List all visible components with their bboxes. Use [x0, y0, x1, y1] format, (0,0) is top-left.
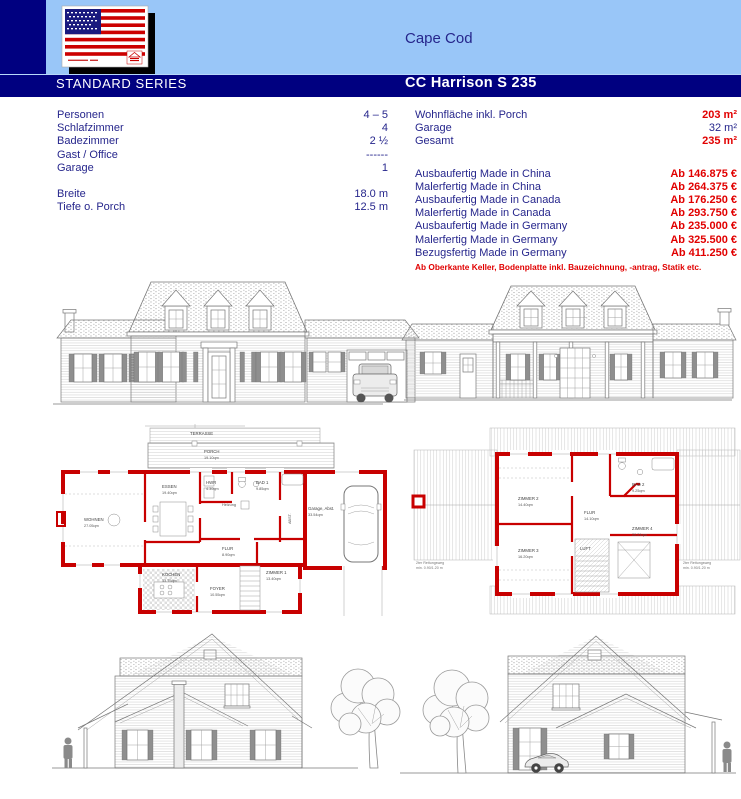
eg-room-label-kochen: KOCHEN [162, 572, 180, 577]
eg-room-label-essen: ESSEN [162, 484, 177, 489]
eg-room-area-foyer: 10.55qm [210, 593, 225, 597]
window [280, 352, 306, 382]
spec-label: Tiefe o. Porch [57, 201, 125, 214]
rear-elevation-drawing [398, 278, 738, 426]
porch: PORCH 19.10qm [148, 441, 334, 468]
eg-room-area-kochen: 13.75qm [162, 579, 177, 583]
model-name: CC Harrison S 235 [405, 75, 537, 91]
spec-label: Garage [415, 122, 452, 135]
price-row: Bezugsfertig Made in GermanyAb 411.250 € [415, 247, 737, 260]
price-value: Ab 411.250 € [671, 247, 737, 260]
price-label: Malerfertig Made in Canada [415, 207, 551, 220]
eg-room-label-abst: ABST. [288, 513, 292, 524]
price-row: Malerfertig Made in CanadaAb 293.750 € [415, 207, 737, 220]
window [256, 352, 282, 382]
area-row-gesamt: Gesamt235 m² [415, 135, 737, 148]
eg-room-label-wohnen: WOHNEN [84, 517, 104, 522]
price-row: Malerfertig Made in GermanyAb 325.500 € [415, 234, 737, 247]
left-wing [402, 324, 493, 398]
spec-row-schlafzimmer: Schlafzimmer4 [57, 122, 388, 135]
window [158, 352, 184, 382]
window [660, 352, 686, 378]
main-block [489, 286, 657, 398]
window [122, 730, 153, 760]
eg-room-area-porch: 19.10qm [204, 456, 219, 460]
price-footnote: Ab Oberkante Keller, Bodenplatte inkl. B… [415, 262, 737, 272]
front-elevation-drawing [45, 274, 390, 426]
upper-window [552, 684, 580, 710]
og-room-label-bad2: BAD 2 [632, 482, 645, 487]
eg-room-label-bad1: BAD 1 [256, 480, 269, 485]
rescue-note-right-2: min. 0.90/1.20 m [683, 566, 710, 570]
og-room-area-zimmer3: 16.20qm [518, 555, 533, 559]
spec-row-garage: Garage1 [57, 162, 388, 175]
price-label: Ausbaufertig Made in Germany [415, 220, 567, 233]
area-row-garage: Garage32 m² [415, 122, 737, 135]
spec-value: 235 m² [702, 135, 737, 148]
car-top-view [341, 486, 381, 562]
spec-row-personen: Personen4 – 5 [57, 109, 388, 122]
eg-room-area-wohnen: 27.05qm [84, 524, 99, 528]
eg-room-area-hwr: 4.30qm [206, 487, 219, 491]
price-value: Ab 293.750 € [670, 207, 737, 220]
tree [423, 670, 489, 773]
window [610, 354, 632, 380]
us-flag-logo [62, 6, 154, 74]
spec-value: 4 [382, 122, 388, 135]
area-row-wohnflaeche: Wohnfläche inkl. Porch203 m² [415, 109, 737, 122]
window [134, 352, 160, 382]
spec-value: 2 ½ [370, 135, 388, 148]
window [99, 354, 127, 382]
window [250, 730, 281, 760]
og-room-area-flur: 14.10qm [584, 517, 599, 521]
eg-room-label-zimmer1: ZIMMER 1 [266, 570, 287, 575]
price-value: Ab 264.375 € [670, 181, 737, 194]
price-value: Ab 146.875 € [670, 168, 737, 181]
specs-left-block: Personen4 – 5 Schlafzimmer4 Badezimmer2 … [57, 109, 388, 214]
og-room-area-zimmer2: 14.40qm [518, 503, 533, 507]
right-side-elevation-drawing [398, 628, 741, 778]
eg-room-label-flur: FLUR [222, 546, 233, 551]
specs-right-block: Wohnfläche inkl. Porch203 m² Garage32 m²… [415, 109, 737, 272]
spec-label: Wohnfläche inkl. Porch [415, 109, 527, 122]
eg-room-area-garage: 33.54qm [308, 513, 323, 517]
spec-row-badezimmer: Badezimmer2 ½ [57, 135, 388, 148]
main-block [127, 282, 309, 402]
eg-room-label-foyer: FOYER [210, 586, 225, 591]
spec-label: Gesamt [415, 135, 454, 148]
house-body [500, 636, 722, 773]
eg-room-label-terrasse: TERRASSE [190, 431, 213, 436]
price-label: Ausbaufertig Made in China [415, 168, 551, 181]
window [186, 730, 217, 760]
price-value: Ab 235.000 € [670, 220, 737, 233]
spec-label: Schlafzimmer [57, 122, 124, 135]
back-door [460, 354, 476, 398]
spec-value: 203 m² [702, 109, 737, 122]
spec-row-breite: Breite18.0 m [57, 188, 388, 201]
og-room-label-flur: FLUR [584, 510, 595, 515]
stairs [240, 566, 260, 610]
price-label: Ausbaufertig Made in Canada [415, 194, 561, 207]
price-row: Ausbaufertig Made in CanadaAb 176.250 € [415, 194, 737, 207]
eg-room-label-hwr: HWR [206, 480, 216, 485]
ground-floor-plan: TERRASSE PORCH 19.10qm [42, 424, 392, 624]
person-figure [723, 742, 732, 773]
og-room-label-zimmer2: ZIMMER 2 [518, 496, 539, 501]
price-row: Malerfertig Made in ChinaAb 264.375 € [415, 181, 737, 194]
price-row: Ausbaufertig Made in ChinaAb 146.875 € [415, 168, 737, 181]
window [692, 352, 718, 378]
flag-caption-marks [68, 60, 98, 61]
price-label: Bezugsfertig Made in Germany [415, 247, 567, 260]
terrace: TERRASSE [150, 428, 320, 443]
style-title: Cape Cod [405, 30, 473, 47]
eg-room-label-porch: PORCH [204, 449, 220, 454]
window [604, 734, 634, 759]
spec-label: Badezimmer [57, 135, 119, 148]
spec-label: Gast / Office [57, 149, 118, 162]
rescue-note-left-1: 2ter Rettungsweg [416, 561, 444, 565]
spec-value: ------ [366, 149, 388, 162]
house-body [78, 634, 312, 768]
price-value: Ab 325.500 € [670, 234, 737, 247]
bed-zimmer4 [618, 542, 650, 578]
porch [685, 712, 722, 773]
spec-value: 4 – 5 [364, 109, 388, 122]
og-room-label-zimmer3: ZIMMER 3 [518, 548, 539, 553]
left-side-elevation-drawing [40, 628, 395, 778]
eg-room-label-garage: Garage, Abst. [308, 506, 334, 511]
person-figure [64, 738, 73, 769]
window [506, 354, 530, 380]
spec-label: Garage [57, 162, 94, 175]
window [539, 354, 561, 380]
flag-icon [62, 6, 148, 67]
upper-floor-plan: ZIMMER 2 14.40qm FLUR 14.10qm BAD 2 9.25… [400, 424, 741, 624]
eg-room-area-bad1: 9.85qm [256, 487, 269, 491]
rescue-note-left-2: min. 0.90/1.20 m [416, 566, 443, 570]
dimension-line [145, 424, 245, 428]
tree [331, 669, 400, 768]
rescue-note-right-1: 2ter Rettungsweg [683, 561, 711, 565]
og-room-label-luft: LUFT [580, 546, 591, 551]
spec-row-tiefe: Tiefe o. Porch12.5 m [57, 201, 388, 214]
spec-row-gast-office: Gast / Office------ [57, 149, 388, 162]
series-label: STANDARD SERIES [56, 76, 187, 91]
french-door [554, 348, 595, 398]
price-value: Ab 176.250 € [670, 194, 737, 207]
eg-room-area-essen: 19.40qm [162, 491, 177, 495]
right-wing [653, 309, 736, 399]
upper-window [224, 684, 250, 708]
chimney-symbol [413, 496, 424, 507]
spec-value: 1 [382, 162, 388, 175]
builder-emblem-icon [127, 51, 142, 64]
window [69, 354, 97, 382]
eg-room-area-zimmer1: 13.40qm [266, 577, 281, 581]
price-row: Ausbaufertig Made in GermanyAb 235.000 € [415, 220, 737, 233]
price-label: Malerfertig Made in Germany [415, 234, 557, 247]
price-label: Malerfertig Made in China [415, 181, 541, 194]
og-room-label-zimmer4: ZIMMER 4 [632, 526, 653, 531]
spec-value: 12.5 m [354, 201, 388, 214]
house-datasheet-page: Cape Cod STANDARD SERIES CC Harrison S 2… [0, 0, 741, 799]
eg-room-label-heizung: Heizung [222, 503, 236, 507]
og-room-area-zimmer4: 20.21qm [632, 533, 647, 537]
og-room-area-bad2: 9.25qm [632, 489, 645, 493]
spec-value: 32 m² [709, 122, 737, 135]
window [420, 352, 446, 374]
spec-value: 18.0 m [354, 188, 388, 201]
spec-label: Personen [57, 109, 104, 122]
spec-label: Breite [57, 188, 86, 201]
eg-room-area-flur: 8.90qm [222, 553, 235, 557]
